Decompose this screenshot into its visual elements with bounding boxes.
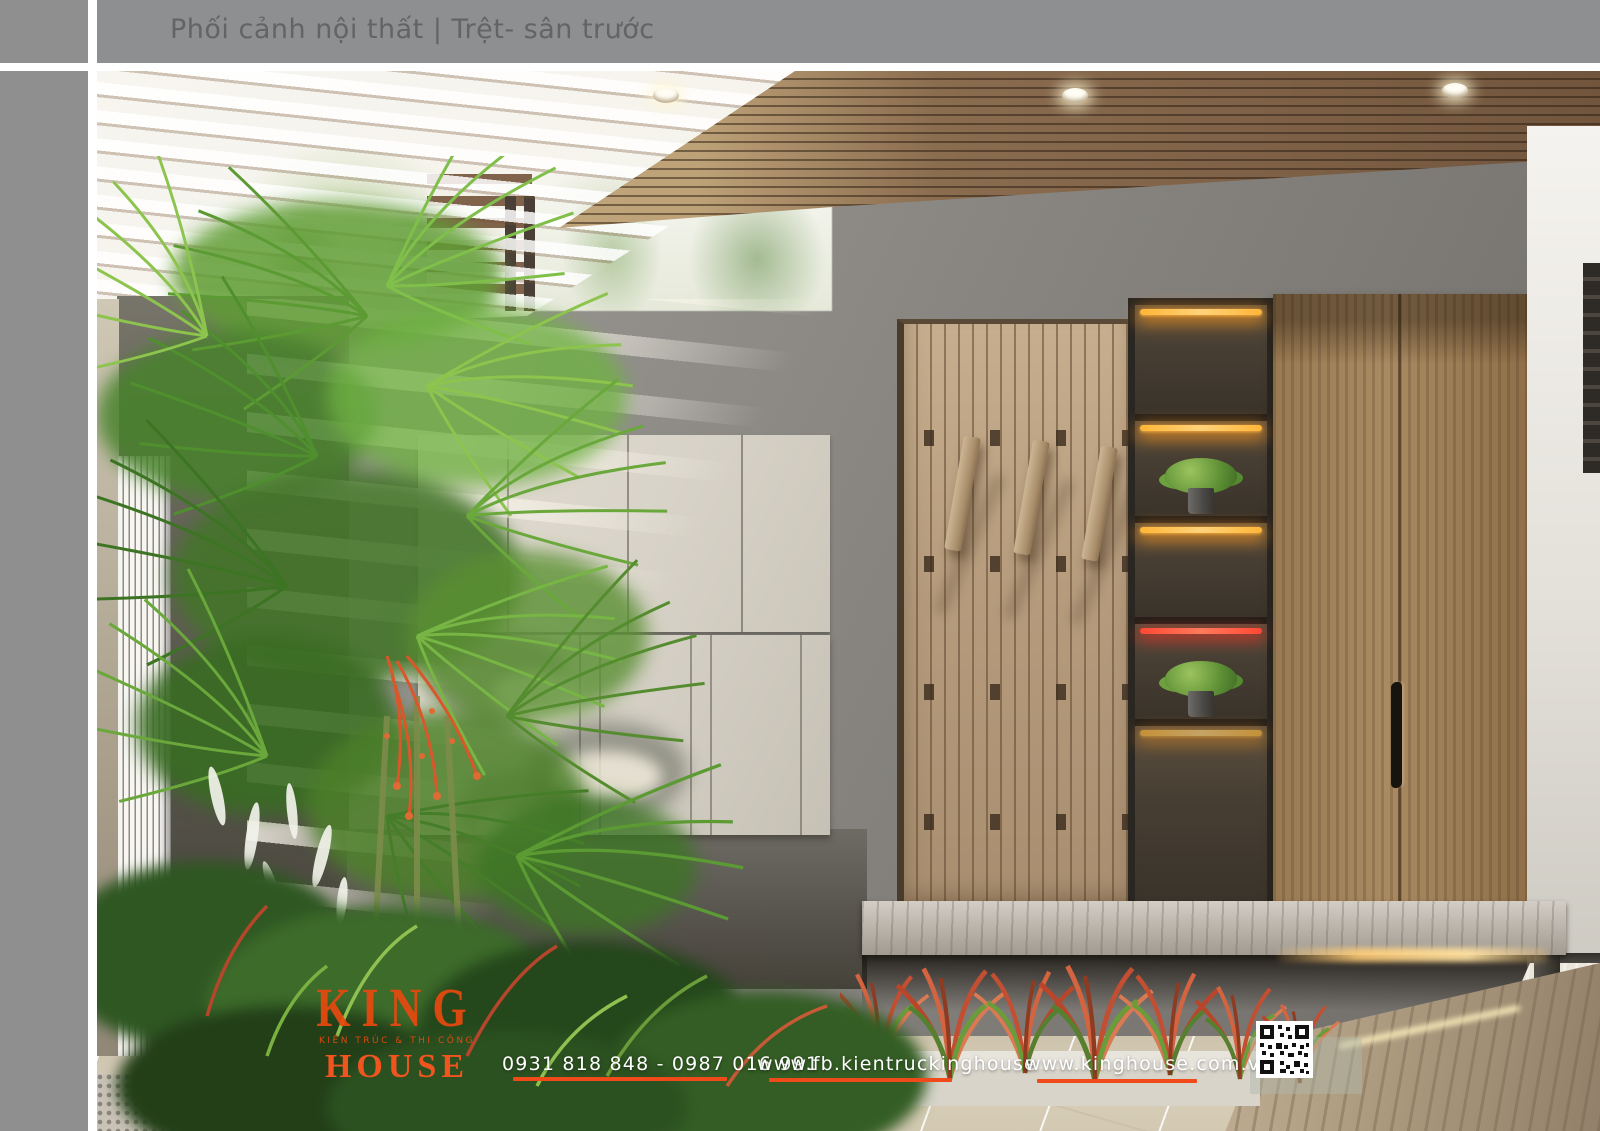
led-strip-red: [1140, 628, 1262, 634]
shelf-cell: [1135, 617, 1267, 719]
shelf-cell: [1135, 305, 1267, 414]
vertical-gutter: [88, 0, 97, 1131]
downlight-icon: [1442, 83, 1468, 98]
shelf-cell: [1135, 516, 1267, 618]
right-slat-edge: [1583, 263, 1600, 473]
led-strip: [1140, 527, 1262, 533]
render-viewport: KING KIẾN TRÚC & THI CÔNG HOUSE 0931 818…: [97, 71, 1600, 1131]
plant-pot: [1188, 691, 1214, 717]
right-white-wall: [1527, 126, 1600, 1006]
wardrobe-handle: [1391, 681, 1402, 788]
shelf-cell: [1135, 414, 1267, 516]
shelf-cell: [1135, 719, 1267, 906]
led-strip: [1140, 730, 1262, 736]
led-strip: [1140, 309, 1262, 315]
plant-pot: [1188, 488, 1214, 514]
page-title: Phối cảnh nội thất | Trệt- sân trước: [170, 14, 655, 45]
palm-plant: [97, 156, 987, 1131]
downlight-icon: [653, 88, 679, 103]
downlight-icon: [1062, 88, 1088, 103]
shelf-plant: [1135, 659, 1267, 717]
page: Phối cảnh nội thất | Trệt- sân trước: [0, 0, 1600, 1131]
wood-wardrobe: [1273, 294, 1527, 909]
display-shelf-unit: [1128, 298, 1274, 913]
shelf-plant: [1135, 456, 1267, 514]
left-gray-panel: [0, 0, 88, 1131]
horizontal-gutter: [0, 63, 1600, 71]
palm-canopy: [97, 201, 697, 936]
title-bar: Phối cảnh nội thất | Trệt- sân trước: [97, 0, 1600, 63]
led-strip: [1140, 425, 1262, 431]
